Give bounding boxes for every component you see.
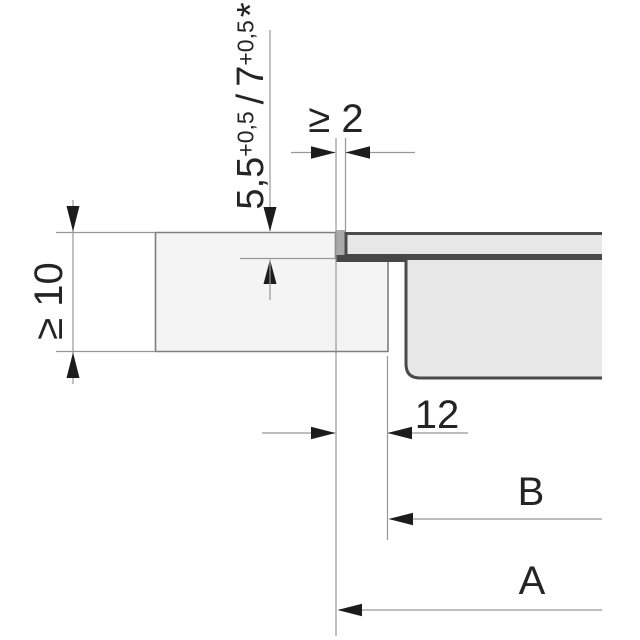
recess-depth-standard-tolerance: +0,5 — [232, 111, 258, 156]
recess-depth-separator: / — [230, 94, 272, 105]
recess-depth-alternative-tolerance: +0,5 — [232, 20, 258, 65]
dimension-a-label: A — [519, 561, 546, 601]
silicone-joint-strip — [336, 230, 346, 259]
recess-depth-alternative-value: 7 — [230, 66, 272, 87]
appliance-body — [406, 259, 602, 379]
rebate-width-label: 12 — [415, 395, 460, 435]
arrow-down-icon — [264, 207, 277, 232]
glass-edge-seal — [336, 255, 408, 262]
installation-diagram: 5,5+0,5/7+0,5* ≥ 2 ≥ 10 12 B A — [0, 0, 640, 640]
arrow-left-icon — [389, 513, 414, 525]
arrow-left-icon — [388, 427, 413, 439]
arrow-right-icon — [311, 427, 336, 439]
dimension-b-label: B — [518, 472, 545, 512]
recess-depth-standard-value: 5,5 — [230, 157, 272, 210]
recess-depth-label: 5,5+0,5/7+0,5* — [232, 2, 270, 209]
footnote-asterisk: * — [230, 2, 272, 17]
arrow-right-icon — [311, 146, 336, 158]
arrow-left-icon — [346, 146, 371, 158]
joint-gap-label: ≥ 2 — [308, 99, 363, 139]
arrow-up-icon — [67, 353, 80, 379]
arrow-left-icon — [338, 604, 363, 616]
cross-section-drawing — [0, 0, 640, 640]
arrow-down-icon — [67, 206, 80, 232]
cooktop-glass-panel — [346, 234, 602, 256]
worktop-thickness-label: ≥ 10 — [29, 262, 69, 340]
